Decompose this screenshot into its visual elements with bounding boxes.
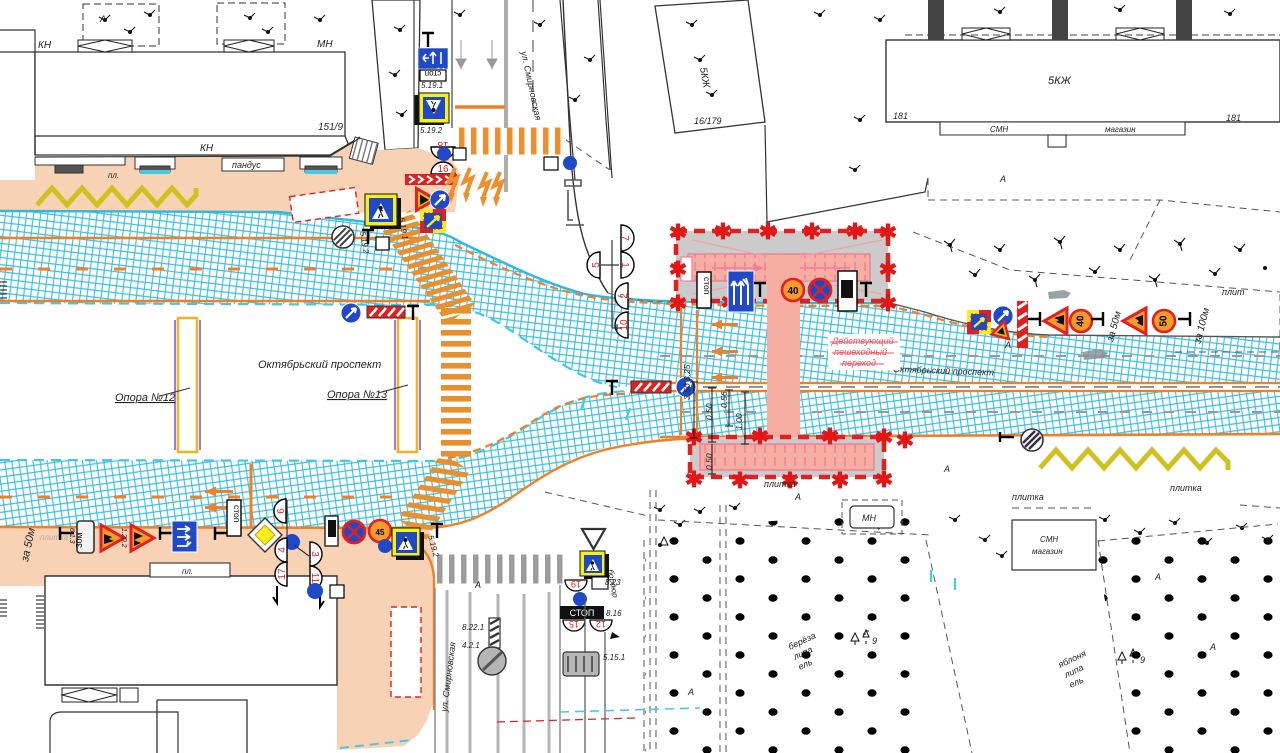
svg-text:Опора №12: Опора №12 <box>115 392 175 404</box>
svg-text:40: 40 <box>1076 315 1087 327</box>
svg-text:плитка: плитка <box>1012 492 1044 502</box>
svg-text:4: 4 <box>277 547 288 553</box>
svg-text:6.1.3: 6.1.3 <box>68 528 75 544</box>
svg-text:✱: ✱ <box>685 467 703 492</box>
svg-text:✱: ✱ <box>846 219 864 244</box>
svg-text:0.56: 0.56 <box>719 391 729 408</box>
svg-text:А: А <box>1154 572 1161 582</box>
svg-text:МН: МН <box>862 513 876 523</box>
svg-text:5: 5 <box>591 262 602 268</box>
svg-text:16/179: 16/179 <box>694 116 722 126</box>
svg-text:6: 6 <box>276 508 287 514</box>
svg-text:А: А <box>687 687 694 697</box>
svg-text:плитка: плитка <box>1170 483 1202 493</box>
svg-text:7: 7 <box>619 235 630 241</box>
svg-text:СМН: СМН <box>990 125 1008 134</box>
svg-text:плитка: плитка <box>764 479 796 489</box>
svg-text:Октябрьский проспект: Октябрьский проспект <box>258 359 381 371</box>
svg-text:✱: ✱ <box>751 424 769 449</box>
svg-text:✱: ✱ <box>731 468 749 493</box>
svg-text:181: 181 <box>893 111 908 121</box>
svg-text:5КЖ: 5КЖ <box>1048 75 1072 87</box>
svg-text:стоп: стоп <box>425 69 441 78</box>
svg-text:5.19.2: 5.19.2 <box>420 126 443 135</box>
svg-text:11: 11 <box>309 573 320 584</box>
svg-text:3.50 3.25: 3.50 3.25 <box>682 364 692 400</box>
svg-text:А: А <box>943 464 950 474</box>
svg-text:✱: ✱ <box>875 425 893 450</box>
svg-text:9: 9 <box>872 636 877 646</box>
svg-text:Действующий: Действующий <box>831 336 894 346</box>
svg-text:1.20.2: 1.20.2 <box>120 528 127 548</box>
svg-text:пандус: пандус <box>232 160 261 170</box>
svg-text:8.22.1: 8.22.1 <box>462 623 484 632</box>
svg-text:15: 15 <box>569 619 579 629</box>
svg-text:А: А <box>1209 642 1216 652</box>
svg-text:✱: ✱ <box>759 219 777 244</box>
svg-text:151/9: 151/9 <box>318 122 343 133</box>
svg-text:5.19.1: 5.19.1 <box>421 81 443 90</box>
svg-text:КН: КН <box>200 143 214 154</box>
svg-text:✱: ✱ <box>879 291 897 316</box>
svg-text:19: 19 <box>571 579 581 589</box>
svg-text:✱: ✱ <box>669 220 687 245</box>
svg-text:17: 17 <box>277 568 288 580</box>
svg-text:0.50: 0.50 <box>704 453 714 470</box>
svg-text:3: 3 <box>309 551 320 557</box>
svg-text:пл.: пл. <box>108 171 119 180</box>
svg-text:10: 10 <box>619 319 630 331</box>
svg-text:9: 9 <box>1140 655 1145 665</box>
svg-text:пл.: пл. <box>182 567 193 576</box>
svg-text:плитка: плитка <box>40 533 69 542</box>
svg-text:5.15.1: 5.15.1 <box>603 653 625 662</box>
svg-text:А: А <box>794 492 801 502</box>
svg-text:✱: ✱ <box>669 257 687 282</box>
svg-text:пешеходный: пешеходный <box>834 347 887 357</box>
svg-text:МН: МН <box>317 39 333 50</box>
svg-text:стоп: стоп <box>232 505 242 523</box>
svg-text:✱: ✱ <box>831 468 849 493</box>
svg-text:1.00: 1.00 <box>734 413 744 430</box>
svg-text:✱: ✱ <box>875 467 893 492</box>
svg-text:✱: ✱ <box>803 219 821 244</box>
svg-text:КН: КН <box>38 40 52 51</box>
svg-text:А: А <box>474 580 481 590</box>
svg-text:✱: ✱ <box>879 220 897 245</box>
svg-text:✱: ✱ <box>669 291 687 316</box>
svg-text:0.50: 0.50 <box>704 403 714 420</box>
svg-text:СМН: СМН <box>1040 535 1058 544</box>
svg-text:✱: ✱ <box>879 257 897 282</box>
svg-text:8.16: 8.16 <box>606 609 622 618</box>
svg-text:✱: ✱ <box>821 424 839 449</box>
svg-text:✱: ✱ <box>714 219 732 244</box>
svg-text:181: 181 <box>1226 113 1241 123</box>
svg-text:12: 12 <box>596 619 606 629</box>
svg-text:50: 50 <box>1159 315 1170 327</box>
svg-text:А: А <box>999 174 1006 184</box>
svg-text:магазин: магазин <box>1105 125 1136 134</box>
svg-text:✱: ✱ <box>896 428 914 453</box>
svg-text:4.2.1: 4.2.1 <box>462 641 480 650</box>
svg-text:Опора №13: Опора №13 <box>327 389 388 401</box>
svg-text:45: 45 <box>376 528 385 537</box>
svg-text:А: А <box>1004 340 1011 350</box>
svg-text:16: 16 <box>437 164 449 175</box>
svg-text:переход: переход <box>842 358 876 368</box>
svg-text:стоп: стоп <box>702 277 712 295</box>
svg-text:А: А <box>99 14 106 24</box>
svg-text:40: 40 <box>787 286 799 297</box>
svg-text:1: 1 <box>619 262 630 268</box>
svg-text:магазин: магазин <box>1032 547 1063 556</box>
svg-text:СТОП: СТОП <box>570 608 595 618</box>
